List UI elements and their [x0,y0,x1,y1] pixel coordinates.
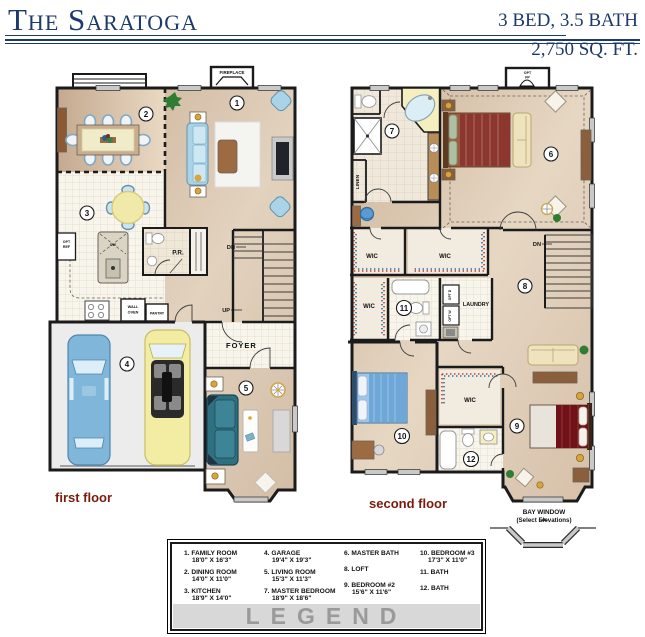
legend-title-band: LEGEND [173,604,480,628]
legend-item-label: 3. KITCHEN [184,588,237,595]
loveseat [513,113,531,167]
page-title: The Saratoga [8,2,198,38]
tv-console [272,137,293,180]
car-blue [68,335,110,465]
sideboard [58,108,67,152]
fireplace-label: FIREPLACE [220,70,245,75]
legend-column-3: 6. MASTER BATH 8. LOFT 9. BEDROOM #2 15'… [344,550,399,601]
bed-bath-spec: 3 BED, 3.5 BATH [498,10,638,32]
window [556,86,578,91]
room-number-loft: 8 [523,282,528,291]
closet [190,228,207,275]
opt-refrigerator: OPT REF [58,233,76,260]
room-number-bedroom2: 9 [515,422,520,431]
legend-item-label: 7. MASTER BEDROOM [264,588,335,595]
pantry: PANTRY [146,304,168,321]
svg-text:REF: REF [63,245,71,249]
bed-blue [352,371,407,425]
kitchen-island: DW [98,232,128,283]
legend-item-label: 6. MASTER BATH [344,550,399,557]
wic2-floor [408,228,488,275]
legend-item: 2. DINING ROOM 14'0" X 11'0" [184,569,237,583]
room-number-dining: 2 [144,110,149,119]
window [293,406,298,432]
room-number-master-bath: 7 [390,127,395,136]
ceiling-fan-icon [542,204,553,215]
wall-oven: WALL OVEN [121,299,145,321]
sink [147,256,157,266]
coffee-table [218,140,237,173]
dishwasher-label: DW [110,243,116,247]
wic3-label: WIC [363,304,375,310]
toilet [152,234,164,244]
legend-item: 6. MASTER BATH [344,550,399,557]
tub [440,431,456,469]
second-floor-plan: OPT FP [340,56,605,561]
plant [580,346,589,355]
window [234,497,268,502]
plant [553,214,561,222]
legend-item-label: 4. GARAGE [264,550,335,557]
powder-room-label: P.R. [172,250,184,257]
legend-column-1: 1. FAMILY ROOM 18'0" X 16'3" 2. DINING R… [184,550,237,607]
window [590,184,595,208]
legend-item-label: 8. LOFT [344,566,399,573]
legend-title: LEGEND [246,603,408,629]
wic4-floor [440,370,500,424]
legend-item-label: 11. BATH [420,569,475,576]
legend-item: 5. LIVING ROOM 15'3" X 11'3" [264,569,335,583]
mirror [273,410,290,452]
svg-text:PANTRY: PANTRY [150,312,165,316]
legend-item-dims: 15'3" X 11'3" [264,576,335,583]
legend-item-label: 1. FAMILY ROOM [184,550,237,557]
legend-column-4: 10. BEDROOM #3 17'3" X 11'0" 11. BATH 12… [420,550,475,597]
legend-item-dims: 15'6" X 11'6" [344,589,399,596]
svg-text:OPT: OPT [63,240,71,244]
svg-text:OPT: OPT [524,71,532,75]
lamp [576,392,583,399]
window [450,86,470,91]
car-convertible [145,330,190,465]
header-rule [5,35,566,36]
legend-item-label: 10. BEDROOM #3 [420,550,475,557]
plant [506,470,514,478]
legend-item: 9. BEDROOM #2 15'6" X 11'6" [344,582,399,596]
legend-item-dims: 18'9" X 14'0" [184,595,237,602]
room-number-garage: 4 [125,360,130,369]
lamp [212,473,218,479]
legend-item: 8. LOFT [344,566,399,573]
window [478,86,498,91]
stairs-up-label: UP [222,308,230,314]
shower [354,118,381,154]
legend-item-dims: 18'0" X 16'3" [184,557,237,564]
first-floor-plan: FIREPLACE [30,56,340,516]
foyer: FOYER [226,341,257,350]
foyer-label: FOYER [226,341,257,350]
room-number-master-bedroom: 6 [549,150,554,159]
wic4-label: WIC [464,398,476,404]
lamp [576,454,583,461]
legend-item-dims: 17'3" X 11'0" [420,557,475,564]
window [258,86,281,91]
window [365,470,387,475]
svg-text:OVEN: OVEN [128,311,139,315]
wic2-label: WIC [439,254,451,260]
opt-dryer-label: OPT D [448,289,452,300]
dresser [533,372,577,383]
wic1-label: WIC [366,254,378,260]
legend-item: 12. BATH [420,585,475,592]
window [178,86,201,91]
lamp [195,114,201,120]
room-number-bath11: 11 [400,304,409,313]
room-number-family: 1 [235,99,240,108]
stairs-dn-label: DN [227,245,235,251]
bay-window-detail: BAY WINDOW (Select Elevations) [490,509,596,545]
legend-item: 7. MASTER BEDROOM 18'9" X 18'6" [264,588,335,602]
lamp [537,482,543,488]
dresser [573,468,589,482]
legend-item-dims: 19'4" X 19'3" [264,557,335,564]
bed-red [530,403,592,450]
toilet [463,434,474,447]
stairs-dn-label: DN [533,242,541,248]
floorplan-sheet: The Saratoga 3 BED, 3.5 BATH 2,750 SQ. F… [0,0,645,637]
linen-label: LINEN [355,174,361,189]
bay-window-label: BAY WINDOW [523,509,567,516]
tub [392,280,429,294]
window [398,470,420,475]
legend-item-dims: 18'9" X 18'6" [264,595,335,602]
window [96,86,120,91]
svg-text:FP: FP [525,76,530,80]
dresser [581,130,591,180]
cabinet [353,206,361,226]
window [370,86,389,91]
svg-text:WALL: WALL [128,305,139,309]
cooktop [85,301,109,320]
loft-sofa [528,345,578,365]
legend-item-label: 9. BEDROOM #2 [344,582,399,589]
window [523,497,563,502]
sink [484,433,494,441]
dresser [426,390,436,435]
legend-item: 3. KITCHEN 18'9" X 14'0" [184,588,237,602]
legend-column-2: 4. GARAGE 19'4" X 19'3" 5. LIVING ROOM 1… [264,550,335,607]
legend-item-label: 12. BATH [420,585,475,592]
sink [420,325,428,333]
fireplace: FIREPLACE [211,67,253,88]
optional-fireplace: OPT FP [506,68,549,88]
opt-washer-label: OPT W [448,310,452,322]
legend-item: 11. BATH [420,569,475,576]
lamp [195,188,201,194]
lamp [211,381,217,387]
legend-item-label: 5. LIVING ROOM [264,569,335,576]
room-number-living: 5 [244,384,249,393]
second-floor-caption: second floor [369,496,447,511]
legend-item-dims: 14'0" X 11'0" [184,576,237,583]
room-number-kitchen: 3 [85,209,90,218]
first-floor-caption: first floor [55,490,112,505]
room-number-bedroom3: 10 [398,432,407,441]
legend-item: 1. FAMILY ROOM 18'0" X 16'3" [184,550,237,564]
wic1-floor [350,228,405,275]
sofa-teal [207,395,238,465]
laundry-label: LAUNDRY [463,302,490,308]
legend-item: 10. BEDROOM #3 17'3" X 11'0" [420,550,475,564]
legend-box: 1. FAMILY ROOM 18'0" X 16'3" 2. DINING R… [167,539,486,634]
console-table [243,410,258,452]
ceiling-fan-icon [271,383,285,397]
legend-item-label: 2. DINING ROOM [184,569,237,576]
legend-item: 4. GARAGE 19'4" X 19'3" [264,550,335,564]
room-number-bath12: 12 [467,455,476,464]
sofa [187,123,208,185]
